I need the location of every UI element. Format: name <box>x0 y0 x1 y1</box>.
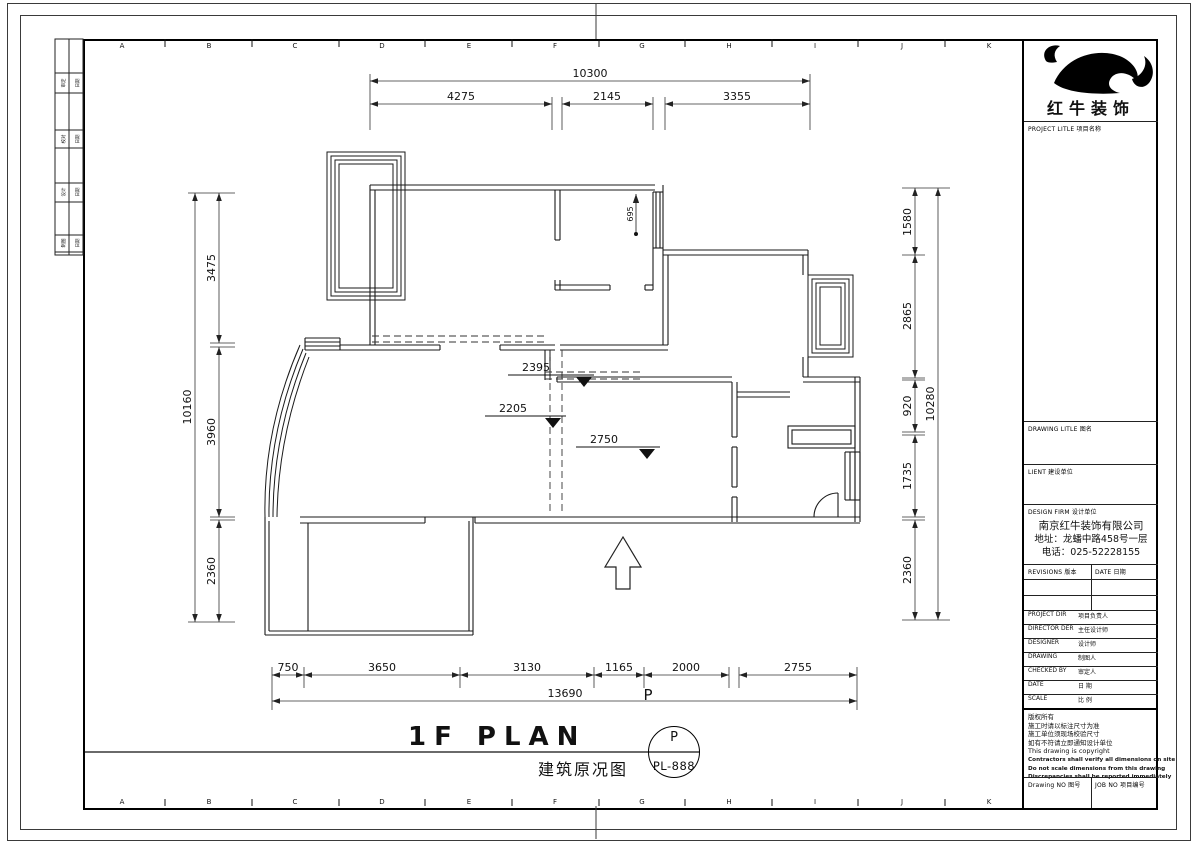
tb-revisions-section: REVISIONS 版本 DATE 日期 <box>1024 564 1158 610</box>
dim-right-5: 2360 <box>901 556 914 584</box>
grid-letter: J <box>900 798 903 806</box>
tb-notes-section: 版权所有 施工时请以标注尺寸为准 施工单位须现场校验尺寸 如有不符请立即通知设计… <box>1024 708 1158 777</box>
strip-label: 日期 <box>75 187 81 196</box>
field-label-cn: 项目负责人 <box>1078 611 1108 620</box>
strip-label: 设计 <box>60 187 67 196</box>
field-label-en: DRAWING <box>1024 653 1078 660</box>
field-label-en: DIRECTOR DER <box>1024 625 1078 632</box>
grid-letter: K <box>987 798 992 806</box>
sheet-title: 1F PLAN <box>408 722 586 752</box>
level-markers <box>485 375 660 459</box>
grid-letters-bottom: A B C D E F G H I J K <box>120 798 992 806</box>
dim-top-1: 4275 <box>447 90 475 103</box>
field-label-cn: 日 期 <box>1078 681 1092 690</box>
axis-label-p: P <box>643 686 652 704</box>
grid-letter: K <box>987 42 992 50</box>
sheet-subtitle: 建筑原况图 <box>538 756 628 780</box>
grid-letter: C <box>293 42 298 50</box>
logo-area: 红牛装饰 <box>1024 39 1158 121</box>
dim-left-3: 2360 <box>205 557 218 585</box>
tb-design-firm-section: DESIGN FIRM 设计单位 南京红牛装饰有限公司 地址：龙蟠中路458号一… <box>1024 504 1158 564</box>
design-firm-label: DESIGN FIRM 设计单位 <box>1024 505 1158 516</box>
dim-right-1: 1580 <box>901 208 914 236</box>
dim-right-4: 1735 <box>901 462 914 490</box>
grid-letter: B <box>207 42 212 50</box>
dim-bottom-total: 13690 <box>548 687 583 700</box>
strip-label: 日期 <box>75 78 81 87</box>
grid-letter: F <box>553 42 557 50</box>
note-line: 施工单位须现场校验尺寸 <box>1028 730 1154 739</box>
grid-letter: B <box>207 798 212 806</box>
dim-695-text: 695 <box>626 206 635 221</box>
grid-letter: I <box>814 42 816 50</box>
stamp-number: PL-888 <box>649 759 699 773</box>
dashed-beam-lines <box>372 336 640 515</box>
tb-project-section: PROJECT LITLE 项目名称 <box>1024 121 1158 421</box>
strip-label: 校对 <box>60 134 67 143</box>
tb-date-row: DATE日 期 <box>1024 680 1158 694</box>
field-label-en: PROJECT DIR <box>1024 611 1078 618</box>
strip-label: 制图 <box>60 238 67 247</box>
dim-left-total: 10160 <box>181 390 194 425</box>
company-name: 南京红牛装饰有限公司 <box>1024 519 1158 533</box>
company-address: 地址：龙蟠中路458号一层 <box>1024 533 1158 546</box>
dim-left-2: 3960 <box>205 418 218 446</box>
rednote-bull-logo-icon <box>1024 39 1158 95</box>
dim-top-3: 3355 <box>723 90 751 103</box>
revisions-date-label: DATE 日期 <box>1091 565 1126 576</box>
field-label-en: SCALE <box>1024 695 1078 702</box>
dim-right-3: 920 <box>901 396 914 417</box>
drawing-title-label: DRAWING LITLE 图名 <box>1024 422 1158 433</box>
drawing-number-stamp: P PL-888 <box>648 726 700 778</box>
dim-right-2: 2865 <box>901 302 914 330</box>
tb-checked-row: CHECKED BY审定人 <box>1024 666 1158 680</box>
tb-designer-row: DESIGNER设计师 <box>1024 638 1158 652</box>
grid-letter: H <box>726 798 731 806</box>
dim-left-1: 3475 <box>205 254 218 282</box>
project-title-label: PROJECT LITLE 项目名称 <box>1024 122 1158 133</box>
dim-bottom-2: 3650 <box>368 661 396 674</box>
level-2395: 2395 <box>522 361 550 374</box>
field-label-cn: 设计师 <box>1078 639 1096 648</box>
field-label-en: CHECKED BY <box>1024 667 1078 674</box>
strip-label: 日期 <box>75 238 81 247</box>
tb-director-row: DIRECTOR DER主任设计师 <box>1024 624 1158 638</box>
dim-right-total: 10280 <box>924 387 937 422</box>
grid-letter: I <box>814 798 816 806</box>
revisions-line-1 <box>1024 579 1158 580</box>
title-block: 红牛装饰 PROJECT LITLE 项目名称 DRAWING LITLE 图名… <box>1022 39 1158 808</box>
north-arrow <box>605 537 641 589</box>
grid-letter: D <box>379 42 384 50</box>
dim-top-2: 2145 <box>593 90 621 103</box>
stamp-type: P <box>649 730 699 745</box>
client-label: LIENT 建设单位 <box>1024 465 1158 476</box>
level-texts: 2395 2205 2750 <box>499 361 618 446</box>
revisions-line-2 <box>1024 595 1158 596</box>
revisions-label: REVISIONS 版本 <box>1024 565 1077 576</box>
logo-text: 红牛装饰 <box>1024 95 1158 119</box>
dim-bottom-3: 3130 <box>513 661 541 674</box>
company-phone: 电话：025-52228155 <box>1024 546 1158 559</box>
note-line: 如有不符请立即通知设计单位 <box>1028 739 1154 748</box>
tb-scale-row: SCALE比 例 <box>1024 694 1158 708</box>
dim-bottom-1: 750 <box>278 661 299 674</box>
revision-strip-labels: 审定 日期 校对 日期 设计 日期 制图 日期 <box>60 78 81 247</box>
dim-bottom-6: 2755 <box>784 661 812 674</box>
level-2205: 2205 <box>499 402 527 415</box>
grid-letter: F <box>553 798 557 806</box>
grid-letter: E <box>467 798 471 806</box>
revision-strip <box>55 39 83 255</box>
grid-letter: D <box>379 798 384 806</box>
grid-letter: C <box>293 798 298 806</box>
level-2750: 2750 <box>590 433 618 446</box>
dim-695: 695 <box>626 194 638 236</box>
walls <box>265 185 860 635</box>
grid-letter: A <box>120 798 125 806</box>
floor-plan-canvas: A B C D E F G H I J K A B C D E F G <box>0 0 1200 848</box>
bay-window-curved-left <box>265 345 309 517</box>
dim-top-total: 10300 <box>573 67 608 80</box>
dim-bottom-5: 2000 <box>672 661 700 674</box>
note-line: This drawing is copyright <box>1028 747 1154 756</box>
field-label-cn: 比 例 <box>1078 695 1092 704</box>
field-label-cn: 制图人 <box>1078 653 1096 662</box>
grid-letters-top: A B C D E F G H I J K <box>120 42 992 50</box>
field-label-en: DATE <box>1024 681 1078 688</box>
tb-drawing-row: DRAWING制图人 <box>1024 652 1158 666</box>
dimension-lines <box>188 74 950 710</box>
bay-window-top-left <box>327 152 405 300</box>
bay-window-right <box>808 275 853 357</box>
field-label-cn: 审定人 <box>1078 667 1096 676</box>
dim-bottom-4: 1165 <box>605 661 633 674</box>
drawing-no-label: Drawing NO 图号 <box>1024 778 1081 789</box>
field-label-cn: 主任设计师 <box>1078 625 1108 634</box>
tb-project-dir-row: PROJECT DIR项目负责人 <box>1024 610 1158 624</box>
grid-letter: G <box>639 42 644 50</box>
grid-letter: E <box>467 42 471 50</box>
drawing-sheet: A B C D E F G H I J K A B C D E F G <box>0 0 1200 848</box>
note-line: Do not scale dimensions from this drawin… <box>1028 765 1151 773</box>
grid-letter: J <box>900 42 903 50</box>
note-line: Contractors shall verify all dimensions … <box>1028 756 1151 764</box>
field-label-en: DESIGNER <box>1024 639 1078 646</box>
note-line: 版权所有 <box>1028 713 1154 722</box>
tb-client-section: LIENT 建设单位 <box>1024 464 1158 504</box>
tb-drawing-title-section: DRAWING LITLE 图名 <box>1024 421 1158 464</box>
note-line: 施工时请以标注尺寸为准 <box>1028 722 1154 731</box>
job-no-label: JOB NO 项目编号 <box>1091 778 1145 789</box>
tb-drawno-section: Drawing NO 图号 JOB NO 项目编号 <box>1024 777 1158 808</box>
strip-label: 审定 <box>60 78 67 87</box>
grid-letter: H <box>726 42 731 50</box>
grid-letter: A <box>120 42 125 50</box>
grid-letter: G <box>639 798 644 806</box>
strip-label: 日期 <box>75 134 81 143</box>
